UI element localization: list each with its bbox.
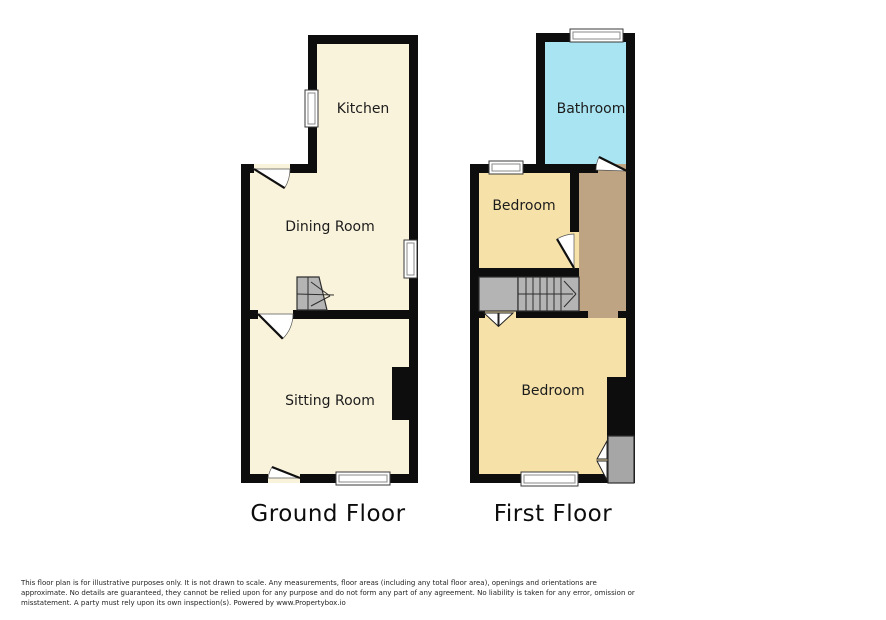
window-frame (404, 240, 417, 278)
gf-kitchen-label: Kitchen (337, 101, 390, 117)
gf-dining-room-label: Dining Room (285, 219, 375, 235)
window-frame (521, 472, 578, 486)
gf-sitting-room-label: Sitting Room (285, 393, 375, 409)
ff-landing-wall-mid (516, 311, 588, 318)
ff-landing-floor (579, 173, 626, 311)
ff-bedroom-bottom-wall (479, 268, 579, 277)
disclaimer-line-2: approximate. No details are guaranteed, … (21, 588, 635, 598)
ff-back-bedroom-window (521, 472, 578, 486)
ff-bathroom-window (570, 29, 623, 42)
window-frame (336, 472, 390, 485)
first-floor-plan: Bathroom Bedroom Bedroom (470, 29, 635, 486)
window-frame (489, 161, 523, 174)
gf-chimney-breast (392, 367, 418, 420)
ff-chimney-breast (607, 377, 635, 440)
ff-landing-doorway-gap (588, 311, 618, 318)
gf-divider-wall-left (250, 310, 258, 319)
ground-floor-plan: Kitchen Dining Room Sitting Room (241, 35, 418, 485)
first-floor-title: First Floor (443, 501, 663, 527)
disclaimer-line-3: misstatement. A party must rely upon its… (21, 598, 635, 608)
window-frame (305, 90, 318, 127)
floorplan-drawing: Kitchen Dining Room Sitting Room (0, 0, 886, 620)
ff-bedroom-right-wall (570, 173, 579, 232)
disclaimer-text: This floor plan is for illustrative purp… (21, 578, 635, 608)
ff-landing-wall-stub-2 (618, 311, 635, 318)
window-frame (570, 29, 623, 42)
gf-dining-window (404, 240, 417, 278)
ff-front-bedroom-floor (479, 173, 570, 268)
ff-back-bedroom-label: Bedroom (521, 383, 584, 399)
ff-stair-cupboard (479, 277, 518, 311)
gf-sitting-window (336, 472, 390, 485)
gf-divider-wall-right (293, 310, 409, 319)
ff-bathroom-label: Bathroom (557, 101, 626, 117)
ff-front-bedroom-window (489, 161, 523, 174)
floorplan-page: Kitchen Dining Room Sitting Room (0, 0, 886, 620)
wardrobe-body (608, 436, 634, 483)
disclaimer-line-1: This floor plan is for illustrative purp… (21, 578, 635, 588)
gf-kitchen-window (305, 90, 318, 127)
ff-landing-wall-stub-1 (479, 311, 485, 318)
ground-floor-title: Ground Floor (218, 501, 438, 527)
ff-staircase (518, 277, 579, 311)
ff-front-bedroom-label: Bedroom (492, 198, 555, 214)
